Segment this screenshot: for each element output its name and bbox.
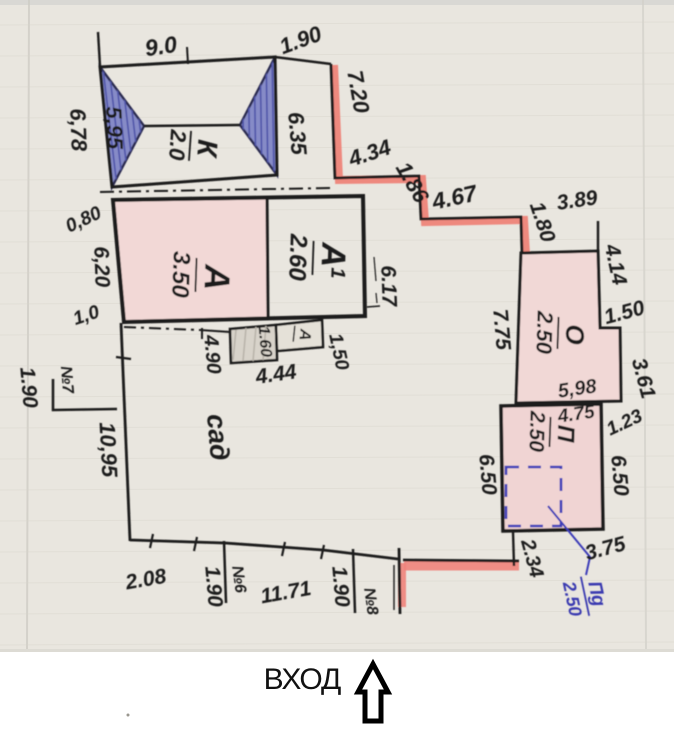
svg-text:10,95: 10,95 xyxy=(95,421,123,478)
svg-text:7.75: 7.75 xyxy=(488,308,515,351)
svg-text:4.90: 4.90 xyxy=(199,333,224,375)
svg-text:А: А xyxy=(196,263,238,291)
svg-text:О: О xyxy=(560,324,591,345)
svg-text:2.0: 2.0 xyxy=(164,128,191,162)
svg-text:6.50: 6.50 xyxy=(474,453,501,496)
svg-text:ВХОД: ВХОД xyxy=(264,663,341,696)
svg-text:6.35: 6.35 xyxy=(283,111,312,157)
svg-text:9.0: 9.0 xyxy=(143,31,178,61)
svg-text:2.50: 2.50 xyxy=(524,410,548,453)
svg-text:6.17: 6.17 xyxy=(376,265,400,308)
svg-text:1.60: 1.60 xyxy=(255,325,275,358)
svg-text:6,78: 6,78 xyxy=(65,108,92,152)
svg-text:1.90: 1.90 xyxy=(327,565,354,608)
svg-text:2.50: 2.50 xyxy=(531,310,558,355)
svg-text:5,95: 5,95 xyxy=(101,106,128,150)
svg-text:П: П xyxy=(552,424,580,443)
svg-text:2.60: 2.60 xyxy=(283,233,312,282)
svg-text:№7: №7 xyxy=(57,365,76,395)
svg-text:сад: сад xyxy=(201,413,235,462)
svg-text:6.50: 6.50 xyxy=(606,454,633,497)
svg-text:1.90: 1.90 xyxy=(200,565,227,608)
svg-text:3.50: 3.50 xyxy=(166,251,195,299)
svg-text:6,20: 6,20 xyxy=(89,246,113,288)
svg-text:1.90: 1.90 xyxy=(15,366,42,409)
svg-text:А: А xyxy=(295,327,313,341)
